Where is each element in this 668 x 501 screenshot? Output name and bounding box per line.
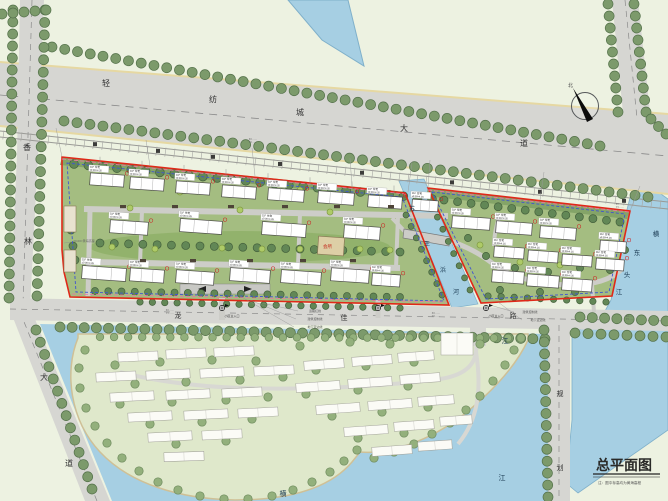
tree <box>364 334 372 342</box>
tree <box>7 77 17 87</box>
tree <box>171 289 178 296</box>
tree <box>196 242 204 250</box>
tree <box>163 130 173 140</box>
tree <box>59 116 69 126</box>
tree <box>500 173 510 183</box>
neighboring-building <box>214 346 254 357</box>
tree <box>648 331 658 341</box>
tree <box>39 42 49 52</box>
tree <box>135 467 143 475</box>
tree <box>35 167 45 177</box>
tree <box>91 422 99 430</box>
tree <box>602 216 610 224</box>
tree <box>145 289 152 296</box>
tree <box>209 333 217 341</box>
tree <box>609 330 619 340</box>
tree <box>595 141 605 151</box>
tree <box>340 95 350 105</box>
road-name-char: 大 <box>400 123 408 133</box>
tree <box>612 314 622 324</box>
tree <box>528 334 538 344</box>
tree <box>649 315 659 325</box>
tree <box>182 378 190 386</box>
tree <box>174 300 180 306</box>
tree <box>611 83 621 93</box>
tree <box>78 460 88 470</box>
tree <box>103 439 111 447</box>
neighboring-building <box>118 351 158 362</box>
road-name-char: 路 <box>510 311 517 320</box>
tree <box>298 303 304 309</box>
tree <box>4 269 14 279</box>
tree <box>633 35 643 45</box>
tree <box>323 303 329 309</box>
tree <box>454 198 462 206</box>
tree <box>420 334 428 342</box>
tree <box>123 56 133 66</box>
tree <box>557 134 567 144</box>
river-name-char: 横 <box>653 229 660 238</box>
tree <box>60 44 70 54</box>
tree <box>508 204 516 212</box>
tree <box>513 175 523 185</box>
neighboring-building <box>238 407 278 418</box>
tree <box>44 362 54 372</box>
tree <box>319 150 329 160</box>
rail-marker <box>156 149 160 153</box>
coordinate-tag-y: Y=······ <box>432 314 441 318</box>
tree <box>162 299 168 305</box>
entrance-label: 小区主入口 <box>488 313 503 318</box>
tree <box>8 41 18 51</box>
tree <box>251 334 259 342</box>
top-pond <box>288 0 364 66</box>
leader-label: 建筑控制线 <box>307 316 322 321</box>
tree <box>228 138 238 148</box>
tree <box>353 97 363 107</box>
tree <box>306 148 316 158</box>
tree <box>434 334 442 342</box>
tree <box>498 293 504 299</box>
tree <box>517 334 525 342</box>
tree <box>417 109 427 119</box>
tree <box>467 287 473 293</box>
tree <box>211 301 217 307</box>
tree <box>335 303 341 309</box>
tree <box>167 333 175 341</box>
tree <box>118 454 126 462</box>
tree <box>541 420 551 430</box>
tree <box>61 411 71 421</box>
tree <box>238 77 248 87</box>
tree <box>36 142 46 152</box>
tree <box>189 133 199 143</box>
tree <box>542 444 552 454</box>
tree <box>335 334 343 342</box>
tree <box>600 313 610 323</box>
tree <box>391 104 401 114</box>
tree <box>289 486 297 494</box>
tree <box>5 245 15 255</box>
tree <box>476 340 484 348</box>
tree <box>543 492 553 501</box>
tree <box>605 23 615 33</box>
tree <box>6 161 16 171</box>
tree <box>219 245 225 251</box>
rail-marker <box>450 180 454 184</box>
road-name-char: 香 <box>23 142 31 152</box>
tree <box>125 240 133 248</box>
tree <box>455 116 465 126</box>
tree <box>259 246 265 252</box>
tree <box>583 329 593 339</box>
tree <box>280 145 290 155</box>
tree <box>386 340 394 348</box>
tree <box>76 384 84 392</box>
tree <box>332 151 342 161</box>
tree <box>464 234 471 241</box>
tree <box>37 104 47 114</box>
tree <box>590 298 596 304</box>
tree <box>7 113 17 123</box>
tree <box>176 131 186 141</box>
tree <box>622 330 632 340</box>
tree <box>643 192 653 202</box>
tree <box>74 447 84 457</box>
tree <box>638 83 648 93</box>
rail-marker <box>211 155 215 159</box>
tree <box>440 226 446 232</box>
road-name-char: 佳 <box>341 313 348 322</box>
tree <box>34 216 44 226</box>
tree <box>326 468 334 476</box>
gate-canopy <box>282 205 288 208</box>
tree <box>40 349 50 359</box>
tree <box>606 35 616 45</box>
rail-marker <box>360 171 364 175</box>
tree <box>248 301 254 307</box>
tree <box>131 380 139 388</box>
tree <box>34 229 44 239</box>
coordinate-tag-y: Y=······ <box>626 317 635 321</box>
tree <box>434 214 440 220</box>
tree <box>41 5 51 15</box>
tree <box>6 149 16 159</box>
tree <box>587 313 597 323</box>
tree <box>310 245 318 253</box>
tree <box>87 484 97 494</box>
tree <box>5 221 15 231</box>
neighboring-building <box>96 371 136 382</box>
tree <box>476 392 484 400</box>
tree <box>366 100 376 110</box>
tree <box>264 393 272 401</box>
canal-name-char: 王 <box>424 241 430 248</box>
tree <box>289 86 299 96</box>
tree <box>353 446 361 454</box>
tree <box>578 184 588 194</box>
coordinate-tag-y: Y=······ <box>166 311 175 315</box>
gate-canopy <box>388 205 394 208</box>
tree <box>307 334 315 342</box>
tree <box>282 245 290 253</box>
tree <box>8 8 18 18</box>
tree <box>6 173 16 183</box>
tree <box>552 180 562 190</box>
canal-name-char: 苏 <box>409 205 415 213</box>
leader-label: 道路红线 <box>309 308 321 313</box>
tree <box>37 129 47 139</box>
tree <box>158 289 165 296</box>
tree <box>562 211 570 219</box>
tree <box>79 323 89 333</box>
tree <box>542 456 552 466</box>
tree <box>8 17 18 27</box>
tree <box>540 349 550 359</box>
tree <box>167 241 175 249</box>
tree <box>456 263 462 269</box>
commercial-block <box>64 250 76 272</box>
tree <box>462 406 470 414</box>
tree <box>575 213 583 221</box>
tree <box>53 386 63 396</box>
tree <box>265 334 273 342</box>
tree <box>661 129 668 139</box>
coordinate-tag-y: Y=······ <box>616 205 625 209</box>
tree <box>6 137 16 147</box>
tree <box>267 143 277 153</box>
clubhouse: 会所 <box>317 236 344 256</box>
tree <box>276 83 286 93</box>
tree <box>55 322 65 332</box>
tree <box>347 304 353 310</box>
tree <box>496 286 503 293</box>
tree <box>603 299 609 305</box>
tree <box>565 182 575 192</box>
tree <box>30 6 40 16</box>
tree <box>302 88 312 98</box>
tree <box>19 7 29 17</box>
tree <box>7 65 17 75</box>
tree <box>540 385 550 395</box>
tree <box>38 92 48 102</box>
neighboring-building <box>254 365 294 376</box>
tree <box>98 51 108 61</box>
tree <box>39 55 49 65</box>
tree <box>127 205 133 211</box>
tree <box>6 185 16 195</box>
tree <box>296 342 304 350</box>
road-name-char: 龙 <box>175 311 182 320</box>
tree <box>636 59 646 69</box>
tree <box>223 334 231 342</box>
tree <box>535 208 543 216</box>
north-label: 北 <box>568 82 573 89</box>
river-name-char: 东 <box>634 248 641 257</box>
tree <box>72 47 82 57</box>
gate-canopy <box>334 205 340 208</box>
tree <box>267 244 275 252</box>
canal-name-char: 浜 <box>440 266 446 274</box>
tree <box>4 281 14 291</box>
neighboring-building <box>166 348 206 359</box>
tree <box>537 295 543 301</box>
tree <box>236 301 242 307</box>
tree <box>482 252 489 259</box>
tree <box>629 0 639 9</box>
tree <box>33 266 43 276</box>
tree <box>543 480 553 490</box>
tree <box>138 333 146 341</box>
tree <box>596 329 606 339</box>
tree <box>637 71 647 81</box>
tree <box>636 315 646 325</box>
tree <box>604 11 614 21</box>
tree <box>315 90 325 100</box>
tree <box>378 102 388 112</box>
tree <box>327 209 333 215</box>
gate-canopy <box>190 259 196 262</box>
tree <box>251 79 261 89</box>
tree <box>6 125 16 135</box>
tree <box>181 333 189 341</box>
tree <box>435 165 445 175</box>
tree <box>468 118 478 128</box>
tree <box>477 242 483 248</box>
tree <box>493 123 503 133</box>
tree <box>632 23 642 33</box>
tree <box>346 338 354 346</box>
tree <box>116 324 126 334</box>
tree <box>210 242 218 250</box>
site-plan-map: 11F 住宅±0.00=4.3511F 住宅±0.00=4.3511F 住宅±0… <box>0 0 668 501</box>
tree <box>70 435 80 445</box>
tree <box>591 185 601 195</box>
tree <box>37 117 47 127</box>
tree <box>544 132 554 142</box>
tree <box>494 203 502 211</box>
gate-canopy <box>140 259 146 262</box>
gate-canopy <box>172 205 178 208</box>
tree <box>186 300 192 306</box>
tree <box>109 244 115 250</box>
tree <box>541 409 551 419</box>
tree <box>268 492 276 500</box>
tree <box>152 333 160 341</box>
rail-marker <box>278 162 282 166</box>
tree <box>199 300 205 306</box>
tree <box>661 316 668 326</box>
tree <box>321 334 329 342</box>
title-note: 注：图中标高均为黄海高程 <box>598 480 642 485</box>
tree <box>506 125 516 135</box>
commercial-block <box>64 206 76 232</box>
tree <box>467 199 475 207</box>
tree <box>149 60 159 70</box>
tree <box>297 246 303 252</box>
rail-marker <box>93 142 97 146</box>
tree <box>111 361 119 369</box>
gate-canopy <box>228 205 234 208</box>
tree <box>31 325 41 335</box>
tree <box>139 240 147 248</box>
tree <box>570 136 580 146</box>
clubhouse-label: 会所 <box>323 243 332 250</box>
gate-canopy <box>247 259 253 262</box>
tree <box>539 337 549 347</box>
road-name-char: 林 <box>24 236 32 246</box>
page-title: 总平面图 <box>596 457 652 473</box>
tree <box>8 29 18 39</box>
tree <box>96 333 104 341</box>
tree <box>140 324 150 334</box>
tree <box>387 247 393 253</box>
road-name-char: 轻 <box>102 78 110 88</box>
tree <box>279 334 287 342</box>
tree <box>195 333 203 341</box>
tree <box>82 404 90 412</box>
gate-canopy <box>350 259 356 262</box>
tree <box>360 304 366 310</box>
tree <box>5 209 15 219</box>
tree <box>461 168 471 178</box>
tree <box>308 478 316 486</box>
tree <box>7 89 17 99</box>
tree <box>640 95 650 105</box>
neighboring-building <box>222 387 262 398</box>
tree <box>661 332 668 342</box>
river-name-char: 江 <box>616 288 623 296</box>
neighboring-building <box>164 451 204 461</box>
tree <box>174 65 184 75</box>
tree <box>7 101 17 111</box>
tree <box>582 139 592 149</box>
tree <box>4 293 14 303</box>
tree <box>540 373 550 383</box>
tree <box>396 248 404 256</box>
site-plan-page: 11F 住宅±0.00=4.3511F 住宅±0.00=4.3511F 住宅±0… <box>0 0 668 501</box>
tree <box>200 70 210 80</box>
tree <box>202 135 212 145</box>
tree <box>327 93 337 103</box>
tree <box>239 243 247 251</box>
tree <box>422 163 432 173</box>
tree <box>105 288 112 295</box>
tree <box>0 9 7 19</box>
tree <box>40 17 50 27</box>
residential-building: 11F 住宅±0.00=4.35 <box>366 187 408 210</box>
tree <box>548 210 556 218</box>
tree <box>654 122 664 132</box>
road-name-char: 道 <box>520 138 528 148</box>
neighboring-building <box>440 415 473 426</box>
tree <box>237 207 243 213</box>
tree <box>451 251 457 257</box>
tree <box>215 136 225 146</box>
tree <box>152 246 158 252</box>
neighboring-building <box>202 429 242 440</box>
tree <box>36 154 46 164</box>
tree <box>198 290 205 297</box>
coordinate-tag-y: Y=······ <box>249 140 258 144</box>
tree <box>607 47 617 57</box>
leader-label: 地下室边线 <box>530 317 545 322</box>
tree <box>201 326 211 336</box>
tree <box>539 178 549 188</box>
tree <box>634 47 644 57</box>
tree <box>83 472 93 482</box>
tree <box>604 187 614 197</box>
